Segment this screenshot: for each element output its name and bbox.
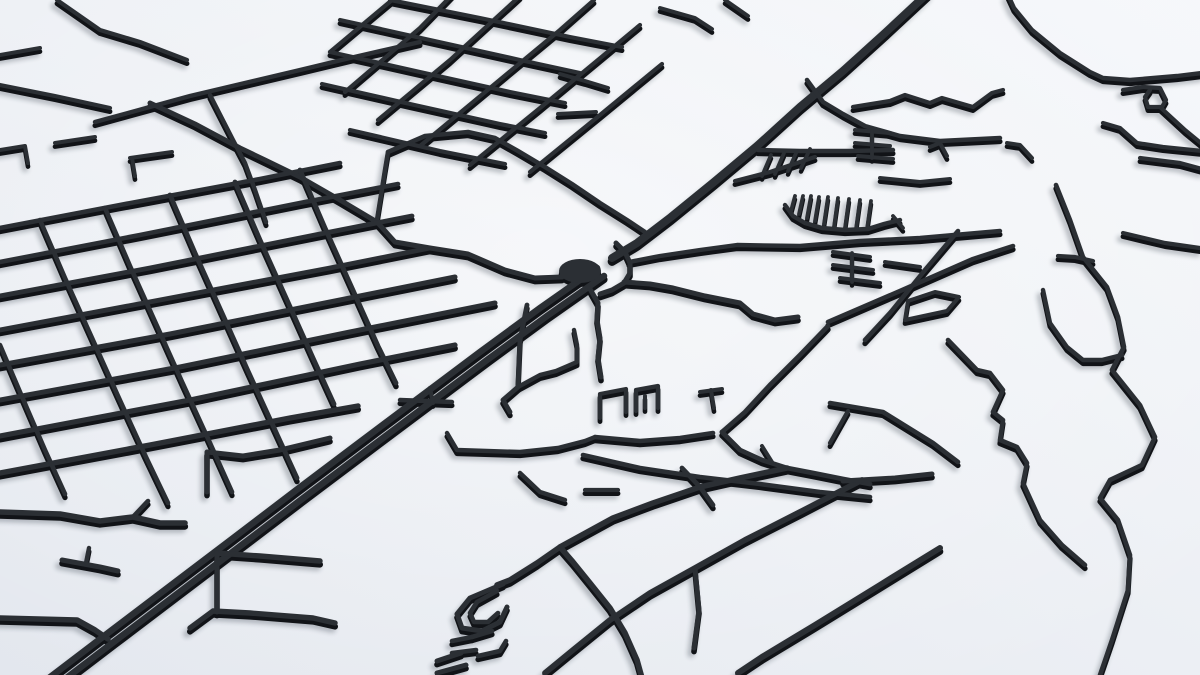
road-segment	[558, 116, 596, 118]
road-segment	[86, 548, 89, 563]
roundabout	[559, 259, 601, 283]
road-segment	[558, 112, 596, 114]
road-segment	[400, 400, 452, 402]
map-canvas	[0, 0, 1200, 675]
street-map-render	[0, 0, 1200, 675]
